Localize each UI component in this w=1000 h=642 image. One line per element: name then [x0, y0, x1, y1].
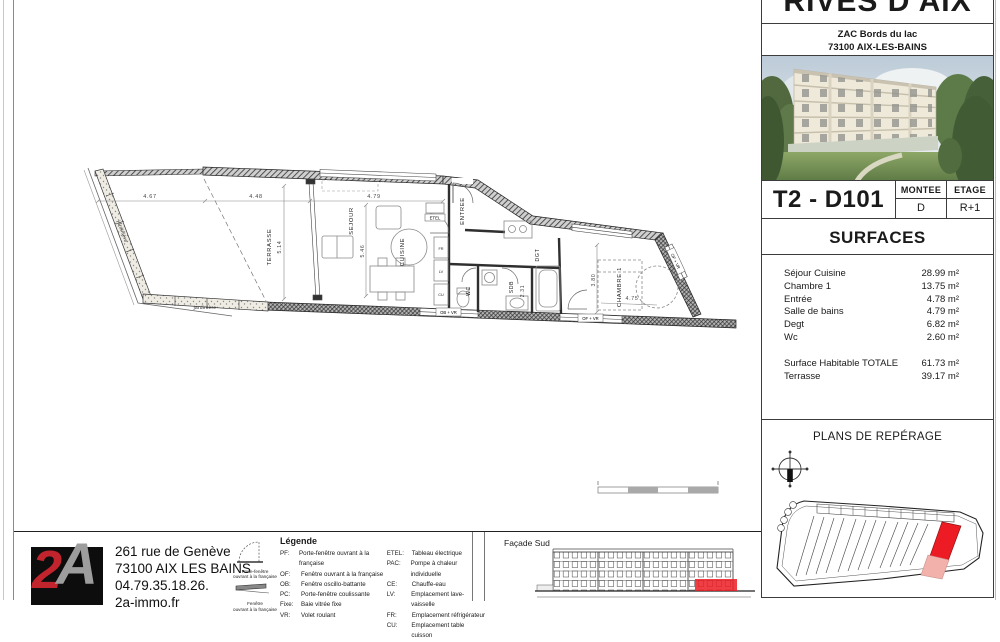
compass-icon [772, 451, 808, 487]
surface-label: Salle de bains [784, 306, 844, 319]
dim-terrace-w1: 4.67 [143, 194, 157, 200]
legend-abbr: Fixe: [280, 600, 301, 610]
unit-id-row: T2 - D101 MONTEE D ETAGE R+1 [761, 180, 994, 219]
legend-label: Fenêtre ouvrant à la française [301, 570, 383, 580]
legend-label: Emplacement table cuisson [411, 621, 486, 642]
legend-abbr: PF: [280, 549, 299, 570]
plan-sheet: TERRASSE 5.14 SEJOUR 5.46 CUISINE ENTREE… [0, 0, 1000, 600]
dim-sejour-depth: 5.46 [360, 245, 366, 258]
facade-elevation-svg [535, 541, 755, 601]
dimension-lines [96, 184, 657, 314]
label-etel: ETEL [430, 215, 441, 220]
agency-street: 261 rue de Genève [115, 543, 251, 560]
surface-label: Séjour Cuisine [784, 268, 846, 281]
label-dgt: DGT [535, 248, 541, 261]
project-title: RIVES D'AIX [762, 0, 993, 19]
legend-abbr: LV: [387, 590, 411, 611]
legend-abbr: PC: [280, 590, 301, 600]
facade-block: Façade Sud [485, 532, 761, 601]
unit-code: T2 - D101 [762, 181, 896, 218]
divider-line [472, 532, 473, 601]
legend-label: Pompe à chaleur individuelle [411, 559, 486, 580]
legend-abbr: ETEL: [387, 549, 412, 559]
project-address-box: ZAC Bords du lac 73100 AIX-LES-BAINS [761, 23, 994, 56]
exterior-walls [95, 167, 736, 328]
surface-value: 4.79 m² [927, 306, 959, 319]
surface-value: 2.60 m² [927, 332, 959, 345]
label-cuisine: CUISINE [400, 238, 406, 266]
floor-plan-svg: TERRASSE 5.14 SEJOUR 5.46 CUISINE ENTREE… [14, 0, 761, 531]
agency-address: 261 rue de Genève 73100 AIX LES BAINS 04… [115, 543, 251, 611]
surface-row: Entrée 4.78 m² [762, 294, 993, 307]
legend-label: Emplacement réfrigérateur [412, 611, 485, 621]
montee-column: MONTEE D [896, 181, 947, 218]
upper-floor-dashed [322, 180, 378, 191]
armchair [376, 206, 401, 229]
window-icon-caption2: ouvrant à la française [233, 607, 277, 612]
surface-total-value: 39.17 m² [922, 371, 960, 384]
legend-column-1: PF:Porte-fenêtre ouvrant à la française … [280, 549, 387, 642]
label-fr: FR [438, 247, 443, 251]
legend-label: Emplacement lave-vaisselle [411, 590, 486, 611]
legend-abbr: OB: [280, 580, 301, 590]
legend-label: Porte-fenêtre ouvrant à la française [299, 549, 387, 570]
surfaces-list-box: Séjour Cuisine 28.99 m² Chambre 1 13.75 … [761, 254, 994, 420]
dim-sdb: 2.31 [520, 285, 526, 298]
legend-block: Légende PF:Porte-fenêtre ouvrant à la fr… [280, 536, 486, 642]
furniture [322, 203, 678, 311]
surface-row: Séjour Cuisine 28.99 m² [762, 268, 993, 281]
label-entree: ENTREE [460, 197, 466, 225]
surface-total-value: 61.73 m² [922, 358, 960, 371]
legend-abbr: CU: [387, 621, 412, 642]
dining-table [370, 266, 414, 292]
montee-header: MONTEE [896, 181, 946, 199]
door-icon-caption2: ouvrant à la française [233, 574, 277, 579]
sofa [322, 236, 353, 258]
legend-label: Baie vitrée fixe [301, 600, 342, 610]
kitchen-table [391, 229, 427, 265]
dim-chambre-depth: 3.80 [591, 274, 597, 287]
label-sdb: SDB [509, 281, 515, 293]
montee-value: D [896, 199, 946, 218]
legend-abbr: OF: [280, 570, 301, 580]
project-title-box: RIVES D'AIX [761, 0, 994, 24]
agency-phone: 04.79.35.18.26. [115, 577, 251, 594]
etage-value: R+1 [947, 199, 993, 218]
agency-logo-a: A [56, 531, 98, 598]
location-plan-svg [762, 448, 993, 598]
label-terrasse: TERRASSE [267, 229, 273, 266]
sheet-frame-right [995, 0, 996, 600]
project-address-line1: ZAC Bords du lac [762, 28, 993, 41]
legend-label: Porte-fenêtre coulissante [301, 590, 370, 600]
project-address-line2: 73100 AIX-LES-BAINS [762, 41, 993, 54]
surface-row: Chambre 1 13.75 m² [762, 281, 993, 294]
legend-label: Volet roulant [301, 611, 335, 621]
scale-bar [598, 481, 718, 493]
label-cu: CU [438, 293, 444, 297]
title-block-panel: RIVES D'AIX ZAC Bords du lac 73100 AIX-L… [761, 0, 994, 601]
dim-terrace-depth: 5.14 [277, 241, 283, 254]
dim-sejour-width: 4.79 [367, 194, 381, 200]
agency-city: 73100 AIX LES BAINS [115, 560, 251, 577]
surface-total-label: Surface Habitable TOTALE [784, 358, 898, 371]
legend-abbr: FR: [387, 611, 412, 621]
sheet-edge-line [3, 0, 4, 600]
label-lv: LV [439, 270, 444, 274]
legend-abbr: CE: [387, 580, 412, 590]
dim-chambre-width: 4.75 [626, 296, 639, 302]
site-plan [777, 501, 983, 586]
surface-row: Salle de bains 4.79 m² [762, 306, 993, 319]
surfaces-title-box: SURFACES [761, 218, 994, 255]
surfaces-title: SURFACES [829, 228, 926, 247]
label-jardiniere-bottom: jardinière [193, 305, 217, 311]
surface-value: 28.99 m² [922, 268, 960, 281]
legend-label: Fenêtre oscillo-battante [301, 580, 366, 590]
etage-header: ETAGE [947, 181, 993, 199]
dim-terrace-w2: 4.48 [249, 194, 263, 200]
surface-value: 13.75 m² [922, 281, 960, 294]
surface-value: 4.78 m² [927, 294, 959, 307]
building-render-photo [761, 55, 994, 181]
label-ob-vr: OB + VR [440, 310, 457, 315]
surface-label: Degt [784, 319, 804, 332]
window-swing-icon [233, 582, 273, 596]
surface-row: Degt 6.82 m² [762, 319, 993, 332]
surface-label: Chambre 1 [784, 281, 831, 294]
surface-total-row: Terrasse 39.17 m² [762, 371, 993, 384]
agency-logo: 2 A [31, 547, 103, 605]
location-plan-title: PLANS DE REPÉRAGE [762, 420, 993, 443]
building-render-svg [762, 56, 993, 181]
legend-icons: Porte-fenêtre ouvrant à la française Fen… [233, 538, 277, 612]
surface-value: 6.82 m² [927, 319, 959, 332]
surface-label: Entrée [784, 294, 812, 307]
title-block-bottom: 2 A 261 rue de Genève 73100 AIX LES BAIN… [14, 531, 761, 600]
legend-abbr: VR: [280, 611, 301, 621]
etel-panel [426, 203, 444, 213]
legend-abbr: PAC: [387, 559, 411, 580]
floor-plan-drawing: TERRASSE 5.14 SEJOUR 5.46 CUISINE ENTREE… [14, 0, 761, 531]
door-swing-icon [233, 538, 273, 564]
surface-row: Wc 2.60 m² [762, 332, 993, 345]
agency-website: 2a-immo.fr [115, 594, 251, 611]
facade-highlight-red [695, 579, 737, 591]
legend-label: Chauffe-eau [412, 580, 446, 590]
surface-total-row: Surface Habitable TOTALE 61.73 m² [762, 358, 993, 371]
surface-total-label: Terrasse [784, 371, 820, 384]
legend-label: Tableau électrique [412, 549, 462, 559]
label-wc: WC [466, 286, 472, 296]
etage-column: ETAGE R+1 [947, 181, 993, 218]
label-of-vr-south: OF + VR [582, 316, 598, 321]
location-plan-box: PLANS DE REPÉRAGE [761, 419, 994, 598]
legend-title: Légende [280, 536, 486, 546]
label-chambre: CHAMBRE 1 [617, 267, 623, 307]
label-sejour: SEJOUR [349, 207, 355, 235]
surface-label: Wc [784, 332, 798, 345]
